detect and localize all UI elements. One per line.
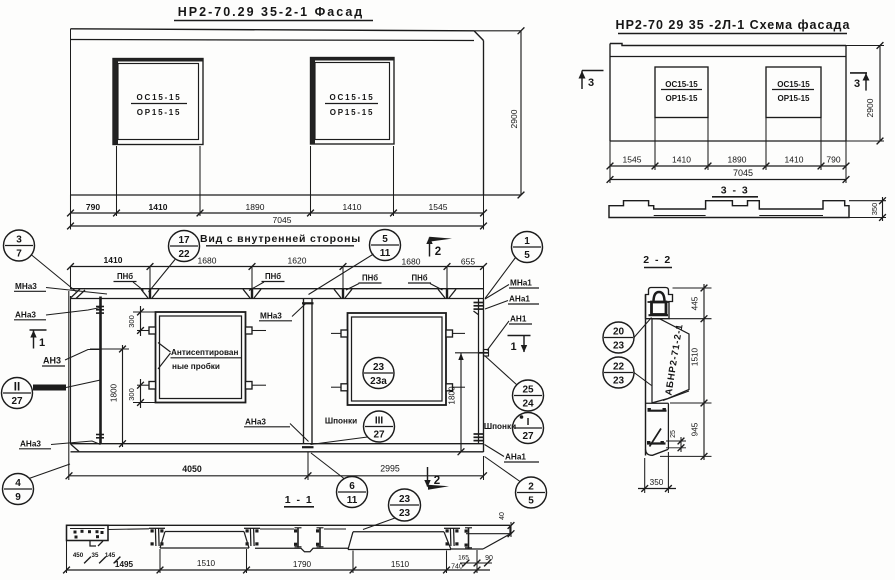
svg-text:Шпонки: Шпонки xyxy=(484,422,516,431)
svg-text:1510: 1510 xyxy=(391,560,410,569)
svg-text:АНа3: АНа3 xyxy=(245,418,266,427)
svg-text:740: 740 xyxy=(451,564,463,571)
svg-text:35: 35 xyxy=(92,552,99,559)
svg-text:4: 4 xyxy=(15,478,21,489)
svg-text:ПНб: ПНб xyxy=(362,274,378,283)
svg-text:ОР15-15: ОР15-15 xyxy=(665,94,698,103)
svg-text:350: 350 xyxy=(650,478,664,487)
svg-text:17: 17 xyxy=(178,235,190,246)
svg-text:ОР15-15: ОР15-15 xyxy=(777,94,810,103)
svg-text:445: 445 xyxy=(691,296,700,310)
svg-text:350: 350 xyxy=(870,203,879,216)
svg-text:1510: 1510 xyxy=(197,559,216,568)
svg-text:27: 27 xyxy=(373,430,385,441)
svg-text:АНа3: АНа3 xyxy=(15,311,36,320)
svg-text:11: 11 xyxy=(380,248,391,259)
svg-text:III: III xyxy=(375,416,384,427)
svg-text:22: 22 xyxy=(613,362,625,373)
svg-text:40: 40 xyxy=(499,512,506,520)
svg-text:1890: 1890 xyxy=(246,202,265,212)
svg-text:1510: 1510 xyxy=(691,347,700,366)
svg-text:2995: 2995 xyxy=(380,464,400,474)
svg-text:3: 3 xyxy=(588,77,594,89)
svg-text:1: 1 xyxy=(524,236,530,247)
svg-text:145: 145 xyxy=(105,552,116,559)
svg-text:2 - 2: 2 - 2 xyxy=(643,254,672,266)
svg-text:23: 23 xyxy=(399,508,411,519)
svg-text:1545: 1545 xyxy=(623,155,642,165)
svg-text:300: 300 xyxy=(127,388,136,401)
svg-text:1410: 1410 xyxy=(104,255,123,265)
svg-text:3: 3 xyxy=(16,235,22,246)
svg-text:11: 11 xyxy=(347,495,358,506)
svg-text:25: 25 xyxy=(522,385,534,396)
svg-text:1410: 1410 xyxy=(672,155,691,165)
svg-text:1 - 1: 1 - 1 xyxy=(285,494,314,506)
svg-text:2900: 2900 xyxy=(865,98,875,117)
svg-text:4050: 4050 xyxy=(182,464,202,474)
svg-text:II: II xyxy=(14,382,20,394)
svg-text:24: 24 xyxy=(522,399,534,410)
svg-text:1410: 1410 xyxy=(343,202,362,212)
svg-text:1890: 1890 xyxy=(728,155,747,165)
svg-text:1: 1 xyxy=(510,341,516,353)
svg-text:790: 790 xyxy=(826,155,840,165)
svg-text:ОС15-15: ОС15-15 xyxy=(329,93,374,102)
svg-text:3: 3 xyxy=(854,78,860,90)
svg-text:7045: 7045 xyxy=(273,215,292,225)
svg-text:Шпонки: Шпонки xyxy=(325,417,357,426)
svg-text:ОР15-15: ОР15-15 xyxy=(330,108,375,117)
svg-text:НР2-70 29 35 -2Л-1 Схема фасад: НР2-70 29 35 -2Л-1 Схема фасада xyxy=(616,18,851,32)
svg-text:655: 655 xyxy=(461,257,475,267)
svg-text:1790: 1790 xyxy=(293,560,312,569)
svg-text:1800: 1800 xyxy=(448,386,457,405)
svg-text:АНа1: АНа1 xyxy=(509,295,530,304)
svg-text:1495: 1495 xyxy=(115,560,134,569)
svg-text:ОС15-15: ОС15-15 xyxy=(665,80,698,89)
svg-text:АН3: АН3 xyxy=(43,356,61,366)
svg-text:ные пробки: ные пробки xyxy=(172,361,220,371)
svg-text:23а: 23а xyxy=(370,376,387,387)
svg-text:23: 23 xyxy=(399,494,411,505)
svg-text:АНа3: АНа3 xyxy=(20,440,41,449)
svg-text:АН1: АН1 xyxy=(510,315,527,324)
svg-text:90: 90 xyxy=(485,555,493,562)
svg-text:АНа1: АНа1 xyxy=(505,453,526,462)
svg-text:I: I xyxy=(527,417,530,428)
svg-text:5: 5 xyxy=(524,250,530,261)
svg-text:1800: 1800 xyxy=(110,383,119,402)
svg-text:7: 7 xyxy=(16,249,22,260)
svg-text:1: 1 xyxy=(39,337,45,349)
svg-text:23: 23 xyxy=(613,376,625,387)
svg-text:2: 2 xyxy=(434,475,440,487)
svg-text:2: 2 xyxy=(528,482,534,493)
svg-text:1620: 1620 xyxy=(288,256,307,266)
svg-text:6: 6 xyxy=(349,481,355,492)
svg-text:НР2-70.29 35-2-1 Фасад: НР2-70.29 35-2-1 Фасад xyxy=(178,5,364,19)
svg-text:22: 22 xyxy=(178,249,190,260)
svg-text:Антисептирован: Антисептирован xyxy=(171,348,238,357)
svg-text:27: 27 xyxy=(11,396,23,407)
svg-text:ОС15-15: ОС15-15 xyxy=(777,80,810,89)
svg-text:1680: 1680 xyxy=(198,256,217,266)
svg-text:5: 5 xyxy=(382,234,388,245)
svg-text:2900: 2900 xyxy=(509,109,519,128)
svg-text:5: 5 xyxy=(528,496,534,507)
svg-text:МНа3: МНа3 xyxy=(15,282,37,291)
svg-text:МНа3: МНа3 xyxy=(260,312,282,321)
svg-text:ПНб: ПНб xyxy=(411,274,427,283)
svg-text:1410: 1410 xyxy=(785,155,804,165)
svg-text:790: 790 xyxy=(86,202,100,212)
svg-text:7045: 7045 xyxy=(733,168,753,178)
svg-text:ПНб: ПНб xyxy=(265,272,281,281)
svg-text:ОР15-15: ОР15-15 xyxy=(137,108,182,117)
svg-text:450: 450 xyxy=(73,552,84,559)
svg-text:20: 20 xyxy=(613,327,625,338)
svg-text:1545: 1545 xyxy=(429,202,448,212)
svg-text:1680: 1680 xyxy=(402,257,421,267)
svg-text:2: 2 xyxy=(435,246,441,258)
svg-text:ОС15-15: ОС15-15 xyxy=(136,93,181,102)
svg-text:27: 27 xyxy=(522,431,534,442)
svg-text:3 - 3: 3 - 3 xyxy=(721,185,750,197)
svg-text:Вид с внутренней стороны: Вид с внутренней стороны xyxy=(200,233,361,245)
svg-text:23: 23 xyxy=(613,341,625,352)
svg-text:1410: 1410 xyxy=(149,202,168,212)
svg-text:9: 9 xyxy=(15,492,21,503)
svg-text:МНа1: МНа1 xyxy=(510,279,532,288)
svg-text:25: 25 xyxy=(670,430,677,438)
svg-text:ПНб: ПНб xyxy=(117,272,133,281)
svg-text:300: 300 xyxy=(127,315,136,328)
svg-text:23: 23 xyxy=(373,362,385,373)
svg-text:945: 945 xyxy=(691,422,700,436)
